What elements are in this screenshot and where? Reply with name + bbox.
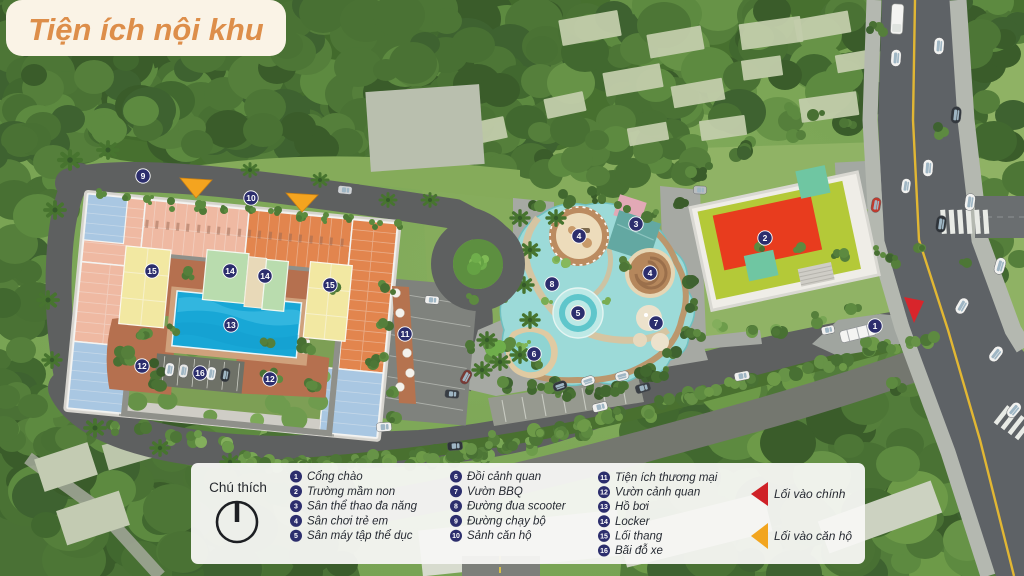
svg-text:7: 7 — [654, 318, 659, 328]
svg-text:Chú thích: Chú thích — [209, 480, 267, 495]
svg-text:Tiện ích nội khu: Tiện ích nội khu — [28, 12, 263, 47]
svg-text:4: 4 — [294, 518, 298, 525]
svg-text:3: 3 — [634, 219, 639, 229]
svg-text:12: 12 — [600, 490, 608, 497]
svg-text:6: 6 — [532, 349, 537, 359]
svg-text:Lối vào căn hộ: Lối vào căn hộ — [774, 529, 852, 543]
svg-text:Tiện ích thương mại: Tiện ích thương mại — [615, 472, 718, 484]
svg-text:2: 2 — [294, 489, 298, 496]
svg-text:Vườn cảnh quan: Vườn cảnh quan — [615, 487, 700, 499]
svg-text:Vườn BBQ: Vườn BBQ — [467, 486, 523, 498]
svg-text:Hồ bơi: Hồ bơi — [615, 501, 649, 513]
svg-text:14: 14 — [225, 266, 235, 276]
svg-text:9: 9 — [454, 518, 458, 525]
svg-text:11: 11 — [600, 475, 608, 482]
svg-text:8: 8 — [454, 504, 458, 511]
svg-text:15: 15 — [600, 533, 608, 540]
svg-text:12: 12 — [137, 361, 147, 371]
svg-text:Trường mầm non: Trường mầm non — [307, 486, 395, 498]
svg-text:1: 1 — [873, 321, 878, 331]
svg-text:Locker: Locker — [615, 516, 651, 528]
svg-text:10: 10 — [452, 533, 460, 540]
svg-text:Lối thang: Lối thang — [615, 530, 663, 542]
svg-text:3: 3 — [294, 504, 298, 511]
svg-text:10: 10 — [246, 193, 256, 203]
svg-text:4: 4 — [577, 231, 582, 241]
svg-text:4: 4 — [648, 268, 653, 278]
svg-text:13: 13 — [226, 320, 236, 330]
svg-text:11: 11 — [401, 329, 410, 339]
svg-text:12: 12 — [265, 374, 275, 384]
svg-text:8: 8 — [550, 279, 555, 289]
svg-text:Sân chơi trẻ em: Sân chơi trẻ em — [307, 515, 389, 527]
svg-text:Bãi đỗ xe: Bãi đỗ xe — [615, 544, 663, 557]
svg-text:13: 13 — [600, 504, 608, 511]
svg-text:6: 6 — [454, 474, 458, 481]
svg-text:5: 5 — [576, 308, 581, 318]
svg-text:15: 15 — [147, 266, 157, 276]
svg-text:Sân thể thao đa năng: Sân thể thao đa năng — [307, 501, 418, 513]
svg-text:14: 14 — [600, 519, 608, 526]
svg-text:5: 5 — [294, 533, 298, 540]
svg-text:7: 7 — [454, 489, 458, 496]
svg-text:16: 16 — [600, 548, 608, 555]
svg-text:Đường đua scooter: Đường đua scooter — [467, 501, 567, 513]
svg-text:14: 14 — [260, 271, 270, 281]
svg-text:Đồi cảnh quan: Đồi cảnh quan — [467, 471, 541, 483]
svg-text:1: 1 — [294, 474, 298, 481]
svg-text:Đường chạy bộ: Đường chạy bộ — [467, 515, 546, 527]
svg-text:Lối vào chính: Lối vào chính — [774, 487, 846, 501]
svg-text:16: 16 — [195, 368, 205, 378]
svg-text:Cổng chào: Cổng chào — [307, 471, 363, 483]
svg-text:2: 2 — [763, 233, 768, 243]
svg-text:Sân máy tập thể dục: Sân máy tập thể dục — [307, 530, 413, 542]
svg-text:15: 15 — [325, 280, 335, 290]
svg-text:9: 9 — [141, 171, 146, 181]
svg-text:Sảnh căn hộ: Sảnh căn hộ — [467, 530, 532, 542]
